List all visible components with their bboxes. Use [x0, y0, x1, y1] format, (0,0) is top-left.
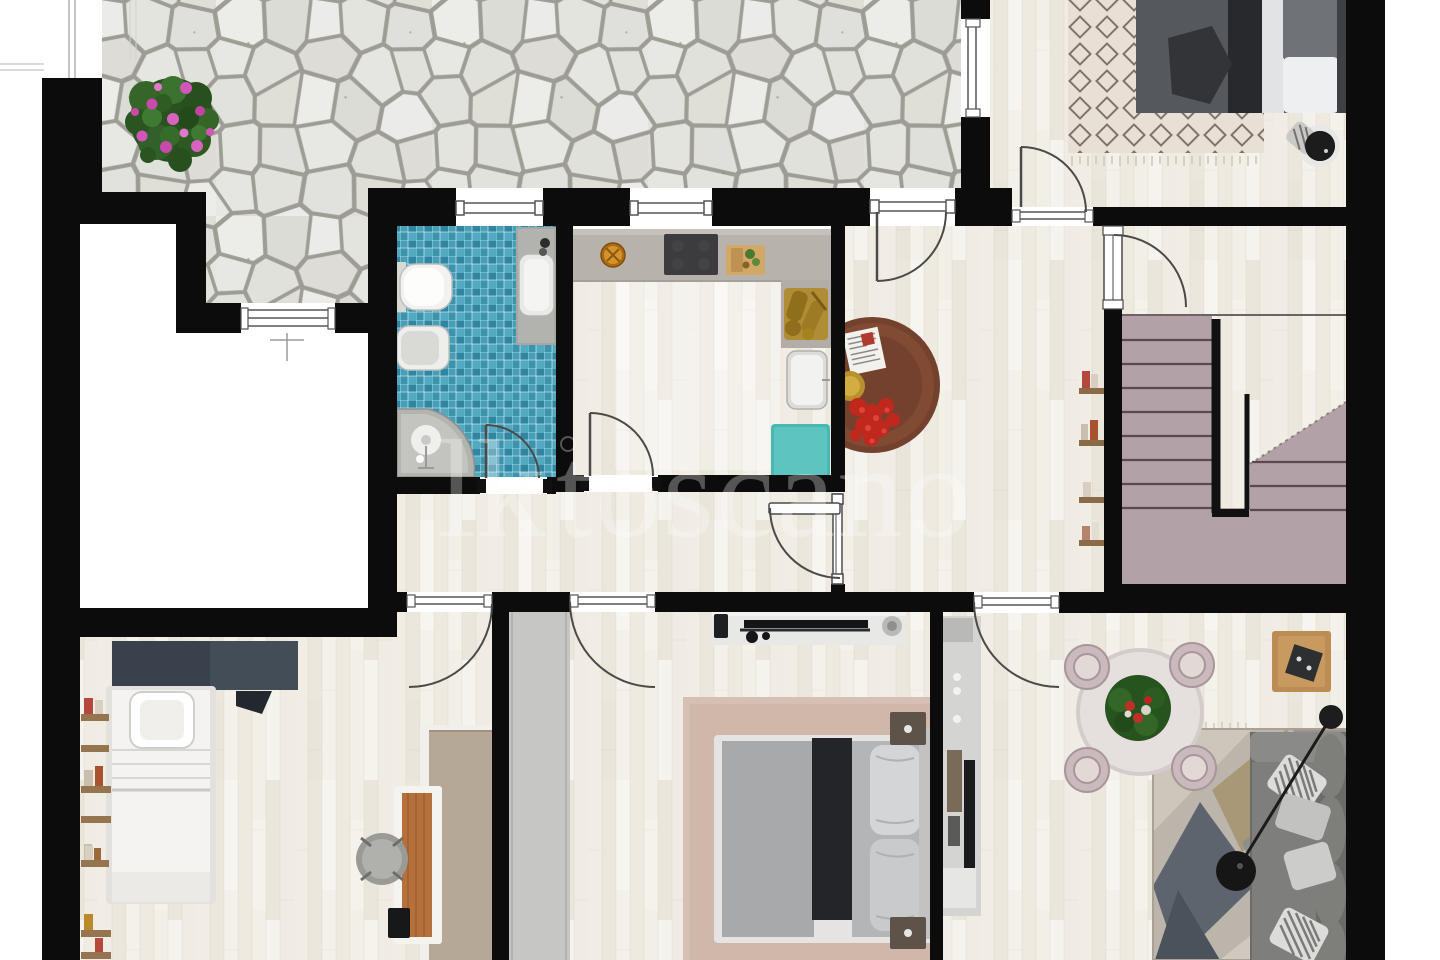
svg-text:lk: lk [437, 412, 546, 567]
svg-text:toscano: toscano [556, 418, 973, 565]
